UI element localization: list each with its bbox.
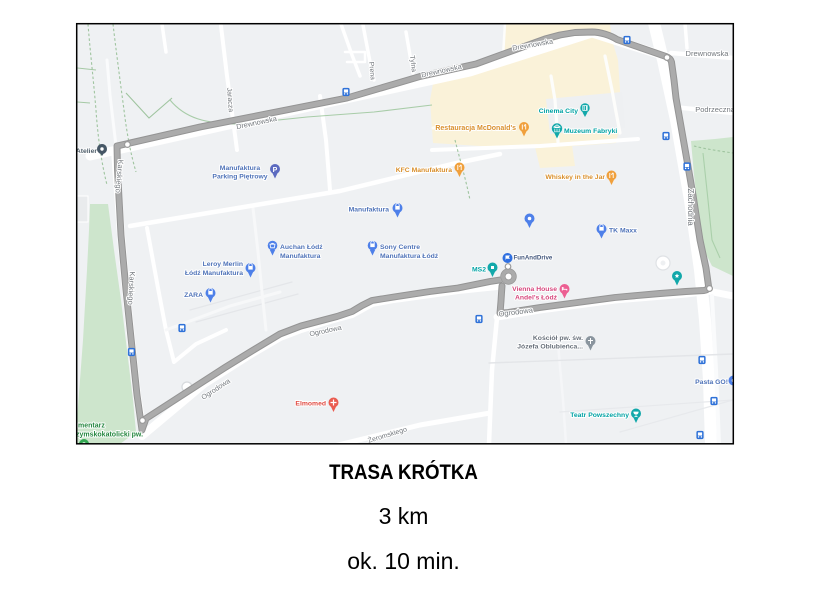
svg-text:Leroy Merlin: Leroy Merlin (203, 261, 243, 268)
svg-text:Józefa Oblubieńca...: Józefa Oblubieńca... (517, 344, 583, 351)
svg-text:FunAndDrive: FunAndDrive (514, 255, 553, 262)
svg-text:Karskiego: Karskiego (126, 271, 137, 305)
svg-text:Drewnowska: Drewnowska (686, 49, 730, 58)
svg-text:Teatr Powszechny: Teatr Powszechny (570, 412, 629, 419)
svg-text:Sony Centre: Sony Centre (380, 244, 420, 251)
svg-text:Manufaktura: Manufaktura (280, 253, 321, 260)
svg-text:Manufaktura Łódź: Manufaktura Łódź (380, 253, 439, 260)
svg-text:ZARA: ZARA (184, 292, 203, 299)
svg-text:Elmomed: Elmomed (295, 401, 326, 408)
svg-text:Auchan Łódź: Auchan Łódź (280, 244, 323, 251)
svg-text:Restauracja McDonald's: Restauracja McDonald's (435, 125, 516, 132)
svg-text:Whiskey in the Jar: Whiskey in the Jar (545, 174, 605, 181)
svg-text:Pasta GO!: Pasta GO! (695, 379, 728, 386)
svg-text:Vienna House: Vienna House (512, 286, 557, 293)
svg-text:Podrzeczna: Podrzeczna (695, 105, 735, 114)
svg-text:Łódź Manufaktura: Łódź Manufaktura (185, 270, 243, 277)
svg-text:Kościół pw. św.: Kościół pw. św. (533, 335, 583, 342)
svg-text:Atelier: Atelier (76, 148, 98, 155)
svg-text:Andel's Łódź: Andel's Łódź (515, 295, 558, 302)
svg-text:P: P (273, 167, 278, 174)
svg-text:Muzeum Fabryki: Muzeum Fabryki (564, 128, 617, 135)
svg-text:KFC Manufaktura: KFC Manufaktura (396, 167, 452, 174)
svg-text:Manufaktura: Manufaktura (220, 165, 261, 172)
svg-text:Parking Piętrowy: Parking Piętrowy (212, 174, 267, 181)
svg-text:MS2: MS2 (472, 267, 486, 274)
svg-text:zymskokatolicki pw.: zymskokatolicki pw. (76, 432, 143, 439)
svg-text:TK Maxx: TK Maxx (609, 228, 637, 235)
svg-text:Manufaktura: Manufaktura (349, 207, 390, 214)
svg-text:mentarz: mentarz (78, 423, 105, 430)
svg-text:Zachodnia: Zachodnia (686, 188, 695, 226)
svg-text:Cinema City: Cinema City (539, 108, 579, 115)
